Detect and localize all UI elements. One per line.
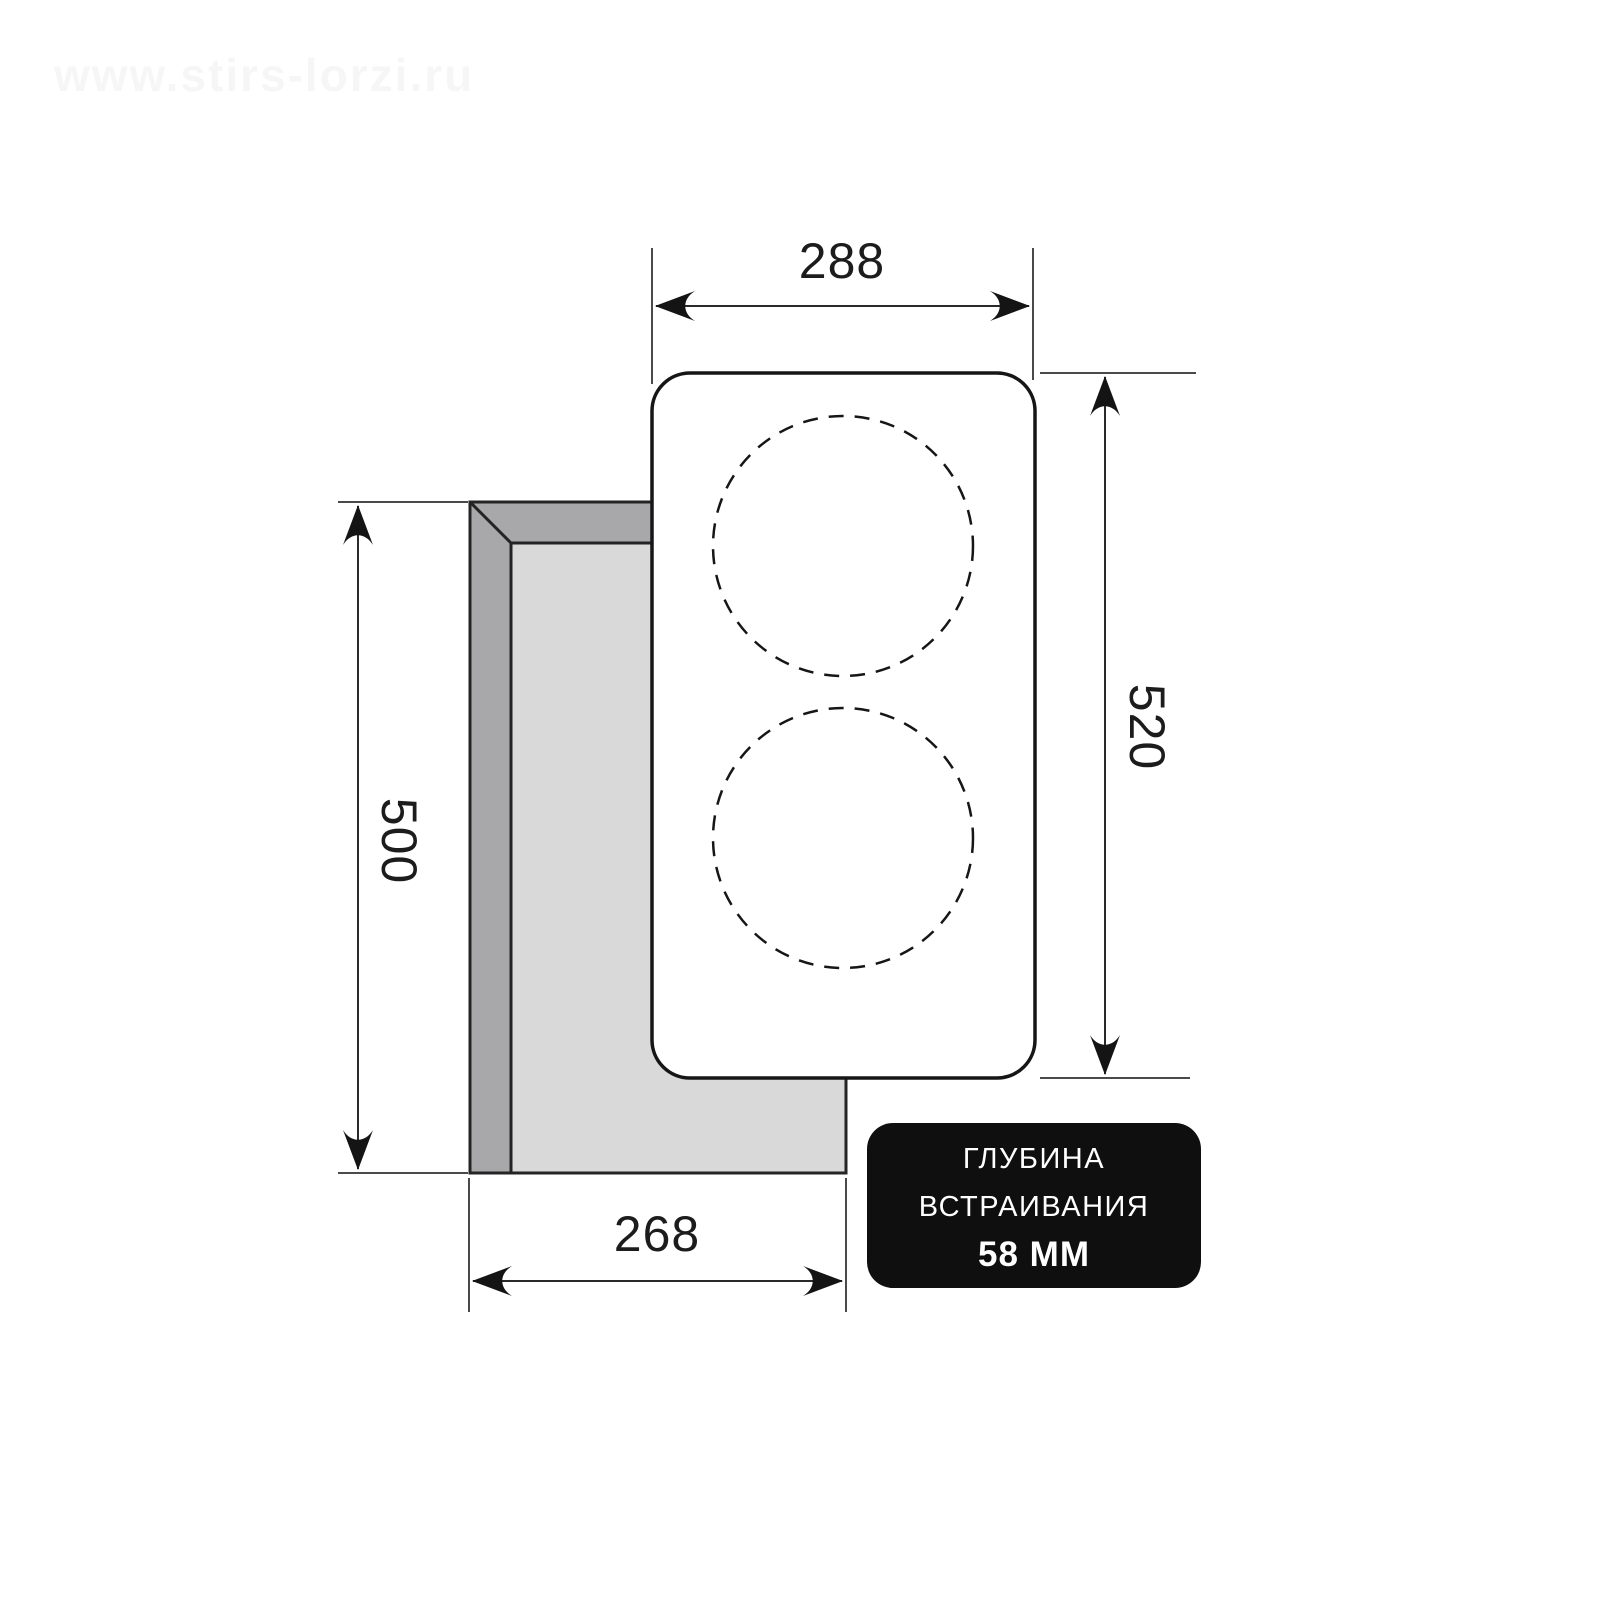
- cooktop-panel: [652, 373, 1035, 1078]
- diagram-canvas: www.stirs-lorzi.ru: [0, 0, 1600, 1600]
- dim-value-panel-height: 520: [1118, 684, 1176, 770]
- badge-line-depth: ГЛУБИНА: [963, 1135, 1105, 1183]
- mounting-depth-badge: ГЛУБИНА ВСТРАИВАНИЯ 58 ММ: [867, 1123, 1201, 1288]
- dim-value-panel-width: 288: [799, 232, 885, 290]
- badge-line-mounting: ВСТРАИВАНИЯ: [919, 1183, 1150, 1231]
- dim-value-cutout-height: 500: [370, 798, 428, 884]
- cooktop-glass-panel: [652, 373, 1035, 1078]
- dim-value-cutout-width: 268: [614, 1205, 700, 1263]
- badge-line-depth-value: 58 ММ: [978, 1231, 1090, 1279]
